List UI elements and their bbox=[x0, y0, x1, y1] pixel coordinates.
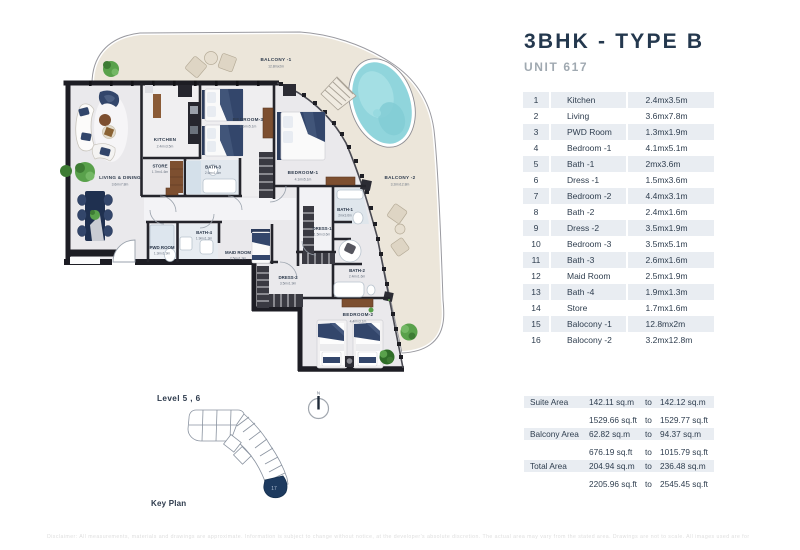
svg-text:BATH-1: BATH-1 bbox=[337, 207, 353, 212]
svg-text:3.6mx7.8m: 3.6mx7.8m bbox=[112, 183, 129, 187]
svg-text:BEDROOM-3: BEDROOM-3 bbox=[233, 117, 264, 122]
svg-text:KITCHEN: KITCHEN bbox=[154, 137, 177, 142]
svg-text:1.3mx1.9m: 1.3mx1.9m bbox=[154, 252, 171, 256]
svg-text:1.9mx1.3m: 1.9mx1.3m bbox=[196, 237, 213, 241]
svg-text:BALCONY -1: BALCONY -1 bbox=[261, 57, 292, 62]
svg-text:BATH-2: BATH-2 bbox=[349, 268, 365, 273]
svg-text:1.7mx1.6m: 1.7mx1.6m bbox=[152, 170, 169, 174]
svg-text:2.6mx1.6m: 2.6mx1.6m bbox=[205, 171, 222, 175]
svg-text:Level 5 , 6: Level 5 , 6 bbox=[157, 394, 201, 403]
svg-text:2.4mx3.5m: 2.4mx3.5m bbox=[157, 145, 174, 149]
svg-text:3.5mx1.9m: 3.5mx1.9m bbox=[280, 282, 297, 286]
svg-text:12.8mx2m: 12.8mx2m bbox=[268, 65, 284, 69]
svg-text:2mx3.6m: 2mx3.6m bbox=[338, 214, 352, 218]
svg-text:17: 17 bbox=[271, 486, 277, 492]
svg-text:1.5mx3.6m: 1.5mx3.6m bbox=[314, 233, 331, 237]
svg-text:BEDROOM-1: BEDROOM-1 bbox=[288, 170, 319, 175]
svg-text:BEDROOM-2: BEDROOM-2 bbox=[343, 312, 374, 317]
svg-text:MAID ROOM: MAID ROOM bbox=[225, 250, 251, 255]
svg-text:DRESS-2: DRESS-2 bbox=[278, 275, 298, 280]
svg-text:STORE: STORE bbox=[152, 164, 167, 169]
svg-text:PWD ROOM: PWD ROOM bbox=[149, 245, 174, 250]
svg-text:4.4mx3.1m: 4.4mx3.1m bbox=[350, 320, 367, 324]
svg-text:Key Plan: Key Plan bbox=[151, 499, 186, 508]
svg-text:DRESS-1: DRESS-1 bbox=[312, 226, 332, 231]
svg-text:BALCONY -2: BALCONY -2 bbox=[385, 175, 416, 180]
svg-text:2.5mx1.9m: 2.5mx1.9m bbox=[230, 257, 247, 261]
svg-text:3.5mx5.1m: 3.5mx5.1m bbox=[240, 125, 257, 129]
svg-text:BATH-4: BATH-4 bbox=[196, 230, 212, 235]
svg-text:LIVING & DINING: LIVING & DINING bbox=[99, 175, 141, 180]
svg-text:4.1mx5.1m: 4.1mx5.1m bbox=[295, 178, 312, 182]
svg-text:3.2mx12.8m: 3.2mx12.8m bbox=[391, 183, 410, 187]
svg-text:BATH-3: BATH-3 bbox=[205, 165, 221, 170]
svg-text:N: N bbox=[317, 391, 320, 396]
svg-text:2.4mx1.6m: 2.4mx1.6m bbox=[349, 275, 366, 279]
